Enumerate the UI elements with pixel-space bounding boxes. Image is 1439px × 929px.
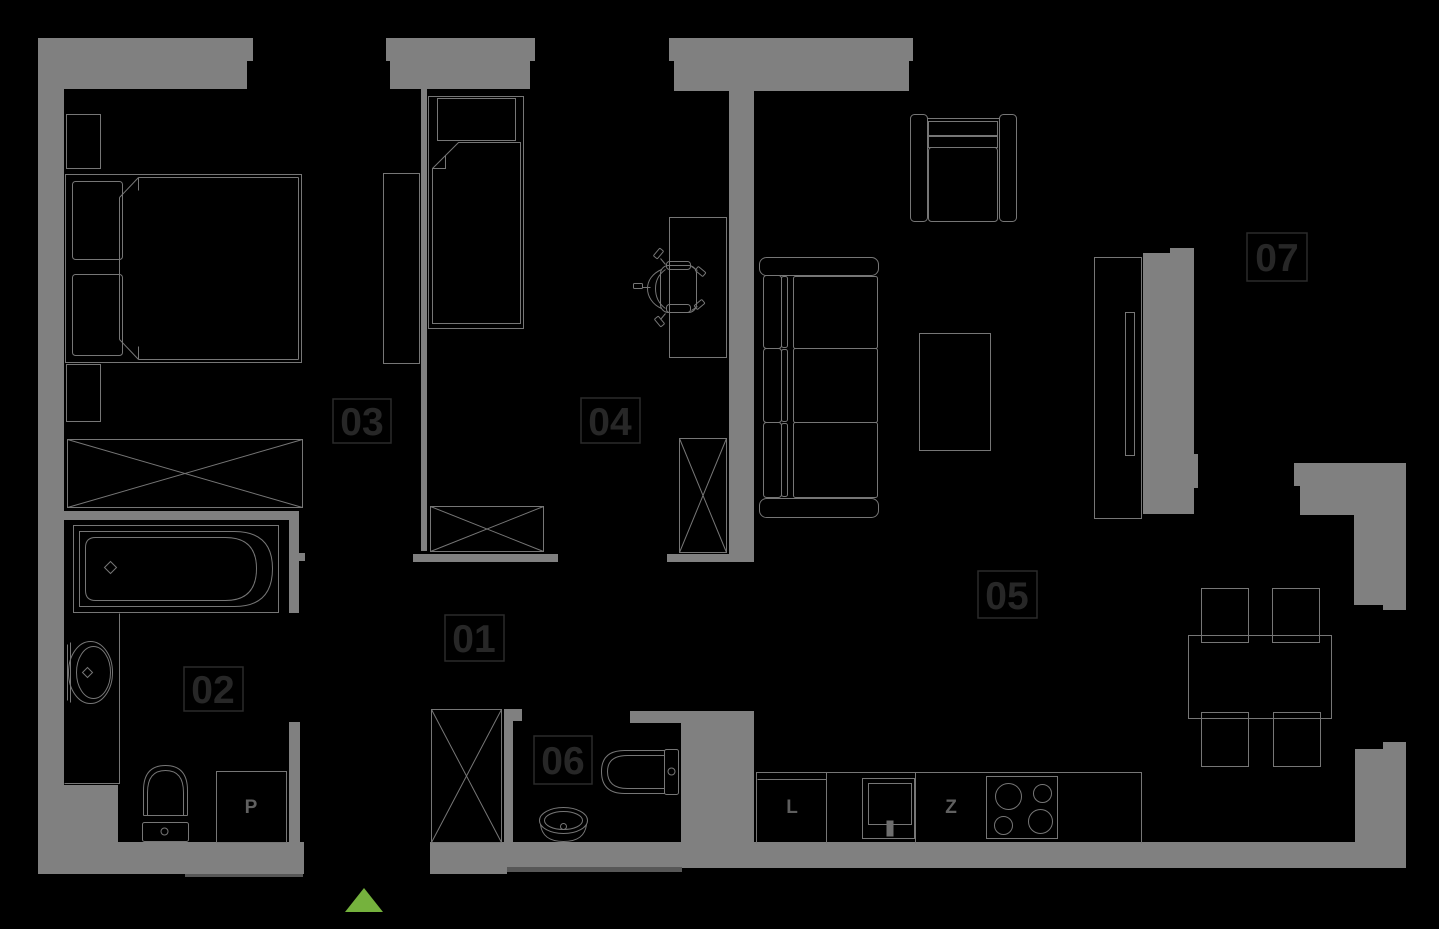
svg-text:06: 06 [541, 740, 584, 783]
svg-text:L: L [786, 797, 798, 818]
svg-text:02: 02 [191, 669, 234, 712]
svg-text:07: 07 [1255, 237, 1298, 280]
svg-text:03: 03 [340, 401, 383, 444]
svg-text:P: P [245, 797, 258, 818]
svg-text:05: 05 [985, 575, 1028, 618]
svg-text:04: 04 [588, 401, 632, 444]
svg-text:Z: Z [945, 797, 957, 818]
svg-text:01: 01 [452, 618, 495, 661]
